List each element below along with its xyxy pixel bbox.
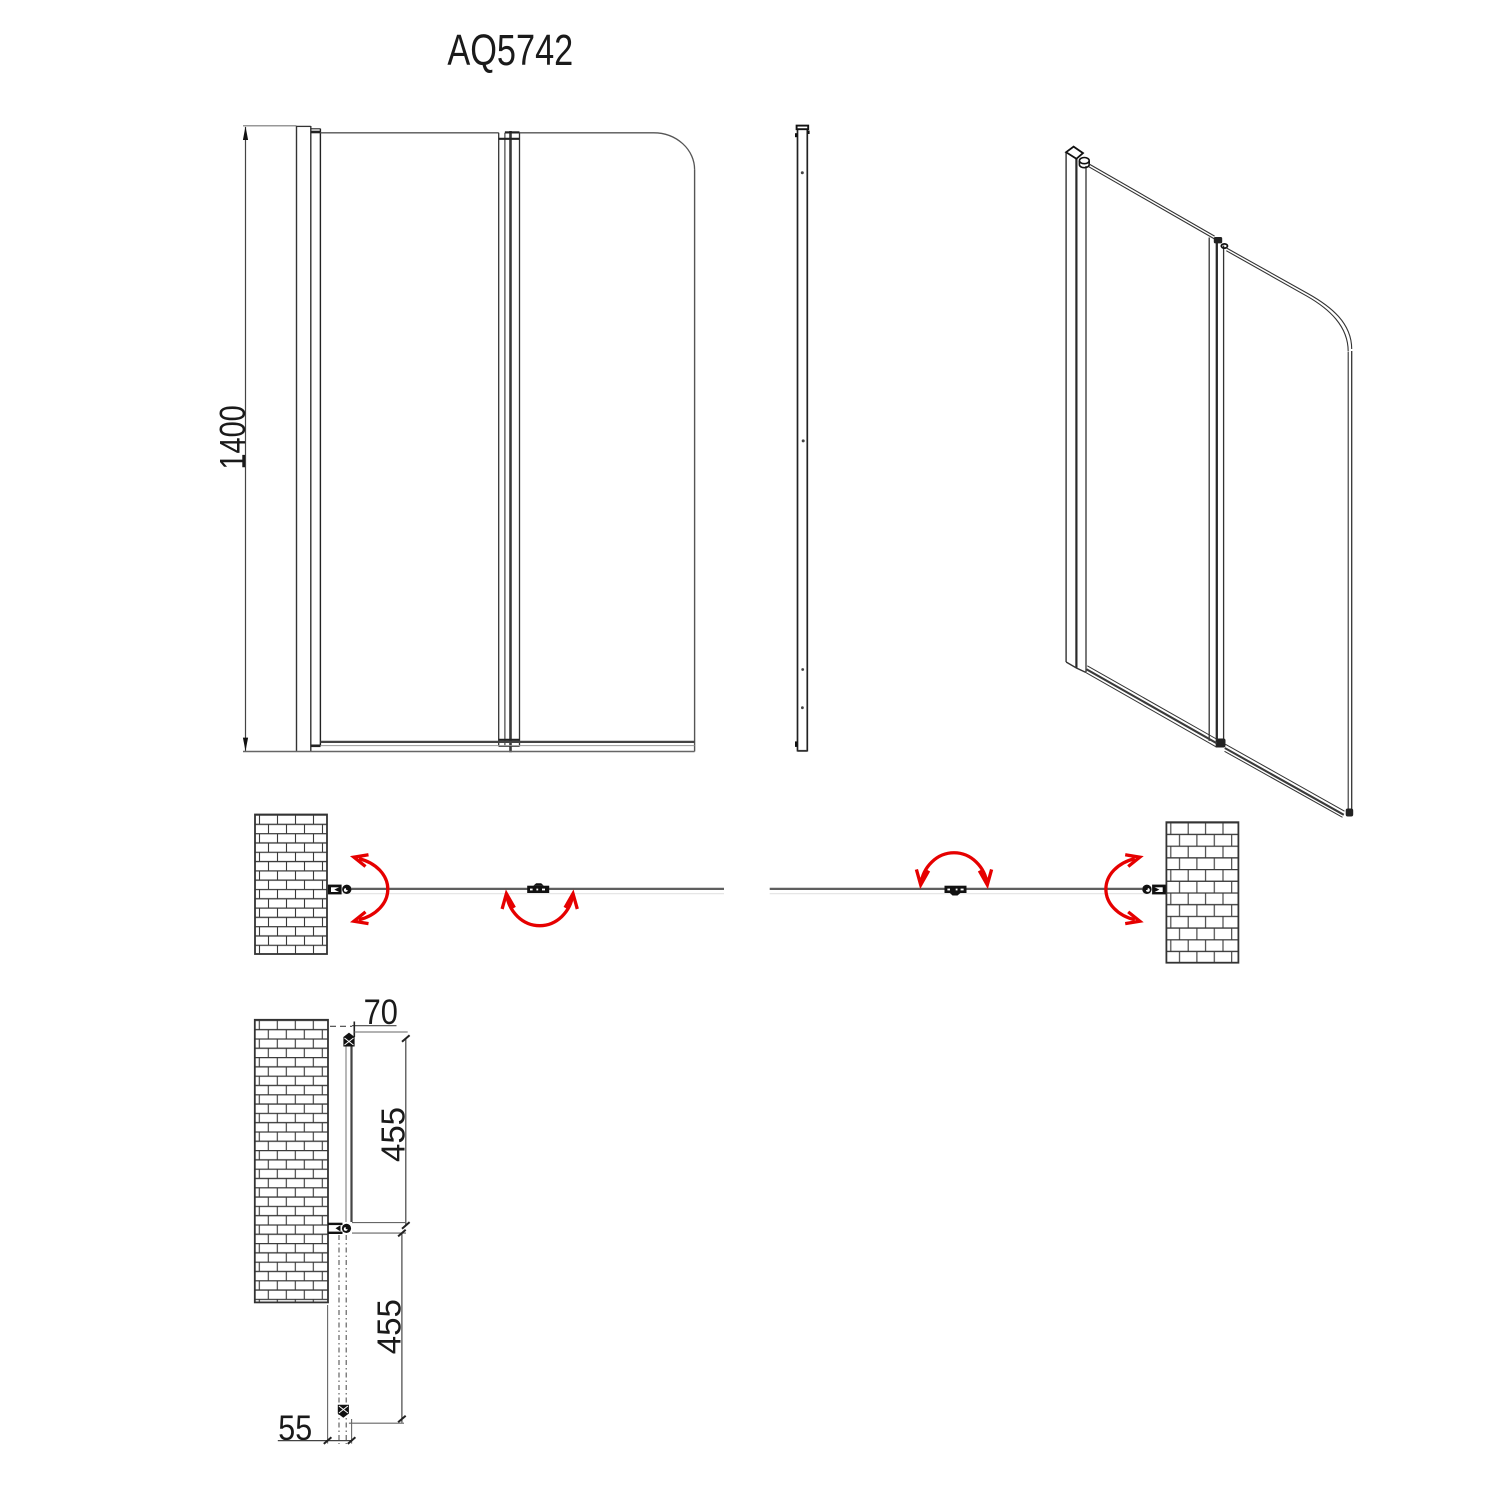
svg-text:AQ5742: AQ5742 xyxy=(447,26,573,75)
svg-text:455: 455 xyxy=(370,1299,407,1354)
svg-text:55: 55 xyxy=(278,1408,312,1447)
svg-text:1400: 1400 xyxy=(212,405,253,469)
svg-text:455: 455 xyxy=(375,1107,412,1162)
